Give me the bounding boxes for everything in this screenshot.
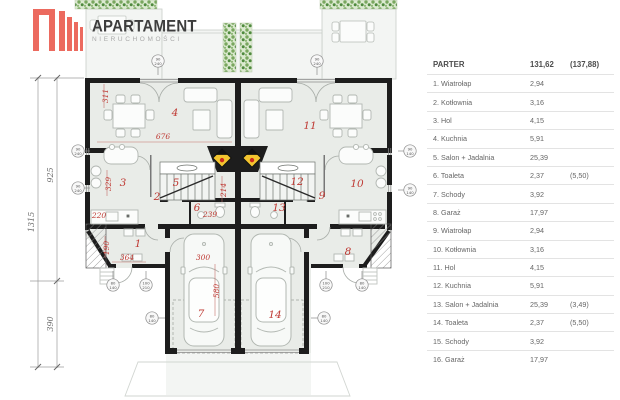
hedge-right [320, 0, 397, 9]
room-label-9: 9 [319, 190, 326, 202]
dim-239: 239 [202, 210, 218, 219]
legend-cell-area: 5,91 [530, 281, 570, 290]
room-label-6: 6 [194, 202, 201, 214]
legend-cell-name: 6. Toaleta [433, 171, 530, 180]
legend-header-alt: (137,88) [570, 60, 612, 69]
logo-title: APARTAMENT [92, 18, 197, 34]
legend-cell-name: 5. Salon + Jadalnia [433, 153, 530, 162]
logo-building-icon [33, 5, 83, 55]
marker-label: 140 [109, 285, 117, 290]
legend-cell-area: 3,92 [530, 337, 570, 346]
dim-925: 925 [46, 167, 55, 182]
room-label-4: 4 [171, 107, 179, 119]
legend-row: 1. Wiatrołap2,94 [427, 74, 614, 92]
legend-cell-name: 4. Kuchnia [433, 134, 530, 143]
legend-cell-area: 4,15 [530, 263, 570, 272]
room-label-13: 13 [272, 202, 286, 214]
legend-row: 15. Schody3,92 [427, 331, 614, 349]
dim-190: 190 [102, 241, 111, 256]
room-label-12: 12 [290, 176, 304, 188]
room-label-1: 1 [135, 238, 142, 250]
marker-label: 240 [74, 188, 82, 193]
legend-row: 9. Wiatrołap2,94 [427, 221, 614, 239]
legend-cell-area: 4,15 [530, 116, 570, 125]
planter-left [223, 23, 236, 72]
marker-label: 210 [322, 285, 330, 290]
legend-row: 8. Garaż17,97 [427, 203, 614, 221]
legend-header-name: PARTER [433, 60, 530, 69]
marker-label: 140 [358, 285, 366, 290]
legend-cell-name: 9. Wiatrołap [433, 226, 530, 235]
stairs-left [160, 162, 215, 200]
room-label-14: 14 [268, 309, 281, 321]
legend-row: 5. Salon + Jadalnia25,39 [427, 148, 614, 166]
dimension-lines [30, 75, 84, 370]
legend-row: 3. Hol4,15 [427, 111, 614, 129]
legend-cell-area: 25,39 [530, 153, 570, 162]
legend-cell-name: 8. Garaż [433, 208, 530, 217]
legend-cell-area_alt: (3,49) [570, 300, 612, 309]
legend-cell-area: 2,94 [530, 226, 570, 235]
room-label-2: 2 [153, 191, 161, 203]
legend-row: 14. Toaleta2,37(5,50) [427, 313, 614, 331]
planter-right [240, 23, 252, 72]
legend-row: 2. Kotłownia3,16 [427, 92, 614, 110]
room-label-7: 7 [198, 308, 205, 320]
legend-cell-area: 25,39 [530, 300, 570, 309]
legend-row: 13. Salon + Jadalnia25,39(3,49) [427, 295, 614, 313]
dim-676: 676 [156, 132, 171, 141]
legend-cell-area: 2,37 [530, 171, 570, 180]
dim-580: 580 [212, 284, 221, 299]
dim-390: 390 [46, 316, 55, 331]
marker-label: 240 [154, 61, 162, 66]
dim-300: 300 [196, 253, 211, 262]
legend-row: 6. Toaleta2,37(5,50) [427, 166, 614, 184]
room-label-5: 5 [173, 177, 180, 189]
logo-subtitle: NIERUCHOMOŚCI [92, 36, 197, 43]
room-label-11: 11 [303, 120, 316, 132]
marker-label: 240 [313, 61, 321, 66]
legend-cell-name: 10. Kotłownia [433, 245, 530, 254]
marker-label: 240 [74, 151, 82, 156]
legend-row: 12. Kuchnia5,91 [427, 276, 614, 294]
room-label-3: 3 [120, 177, 127, 189]
legend-cell-name: 15. Schody [433, 337, 530, 346]
legend-cell-name: 7. Schody [433, 190, 530, 199]
legend-cell-area: 17,97 [530, 355, 570, 364]
dim-1315: 1315 [27, 212, 36, 232]
legend-cell-name: 2. Kotłownia [433, 98, 530, 107]
marker-label: 140 [406, 151, 414, 156]
marker-label: 210 [142, 285, 150, 290]
legend-cell-area: 5,91 [530, 134, 570, 143]
stairs-right [260, 162, 315, 200]
legend-cell-area: 3,16 [530, 98, 570, 107]
legend-cell-area_alt: (5,50) [570, 171, 612, 180]
legend-row: 11. Hol4,15 [427, 258, 614, 276]
legend-cell-name: 3. Hol [433, 116, 530, 125]
legend-cell-name: 12. Kuchnia [433, 281, 530, 290]
room-label-8: 8 [345, 246, 352, 258]
area-legend: PARTER 131,62 (137,88) 1. Wiatrołap2,942… [427, 57, 614, 368]
legend-cell-name: 11. Hol [433, 263, 530, 272]
screenshot-root: 1 2 3 4 5 6 7 8 9 10 11 12 13 14 311 676… [0, 0, 620, 400]
room-label-10: 10 [350, 178, 364, 190]
legend-header: PARTER 131,62 (137,88) [427, 57, 614, 74]
dim-220: 220 [91, 211, 107, 220]
legend-cell-area: 2,94 [530, 79, 570, 88]
legend-rows: 1. Wiatrołap2,942. Kotłownia3,163. Hol4,… [427, 74, 614, 368]
legend-cell-name: 13. Salon + Jadalnia [433, 300, 530, 309]
legend-cell-name: 1. Wiatrołap [433, 79, 530, 88]
legend-cell-area_alt: (5,50) [570, 318, 612, 327]
car-right [248, 234, 294, 346]
legend-cell-area: 17,97 [530, 208, 570, 217]
legend-header-area: 131,62 [530, 60, 570, 69]
legend-row: 16. Garaż17,97 [427, 350, 614, 368]
logo: APARTAMENT NIERUCHOMOŚCI [33, 5, 197, 55]
legend-cell-area: 2,37 [530, 318, 570, 327]
dim-311: 311 [101, 89, 110, 103]
legend-cell-area: 3,16 [530, 245, 570, 254]
marker-label: 140 [148, 318, 156, 323]
legend-cell-area: 3,92 [530, 190, 570, 199]
legend-cell-name: 16. Garaż [433, 355, 530, 364]
dim-364: 364 [120, 253, 135, 262]
marker-label: 140 [320, 318, 328, 323]
legend-cell-name: 14. Toaleta [433, 318, 530, 327]
legend-row: 7. Schody3,92 [427, 184, 614, 202]
marker-label: 140 [406, 190, 414, 195]
legend-row: 10. Kotłownia3,16 [427, 240, 614, 258]
legend-row: 4. Kuchnia5,91 [427, 129, 614, 147]
dim-214: 214 [219, 183, 228, 199]
dim-329: 329 [104, 177, 113, 192]
